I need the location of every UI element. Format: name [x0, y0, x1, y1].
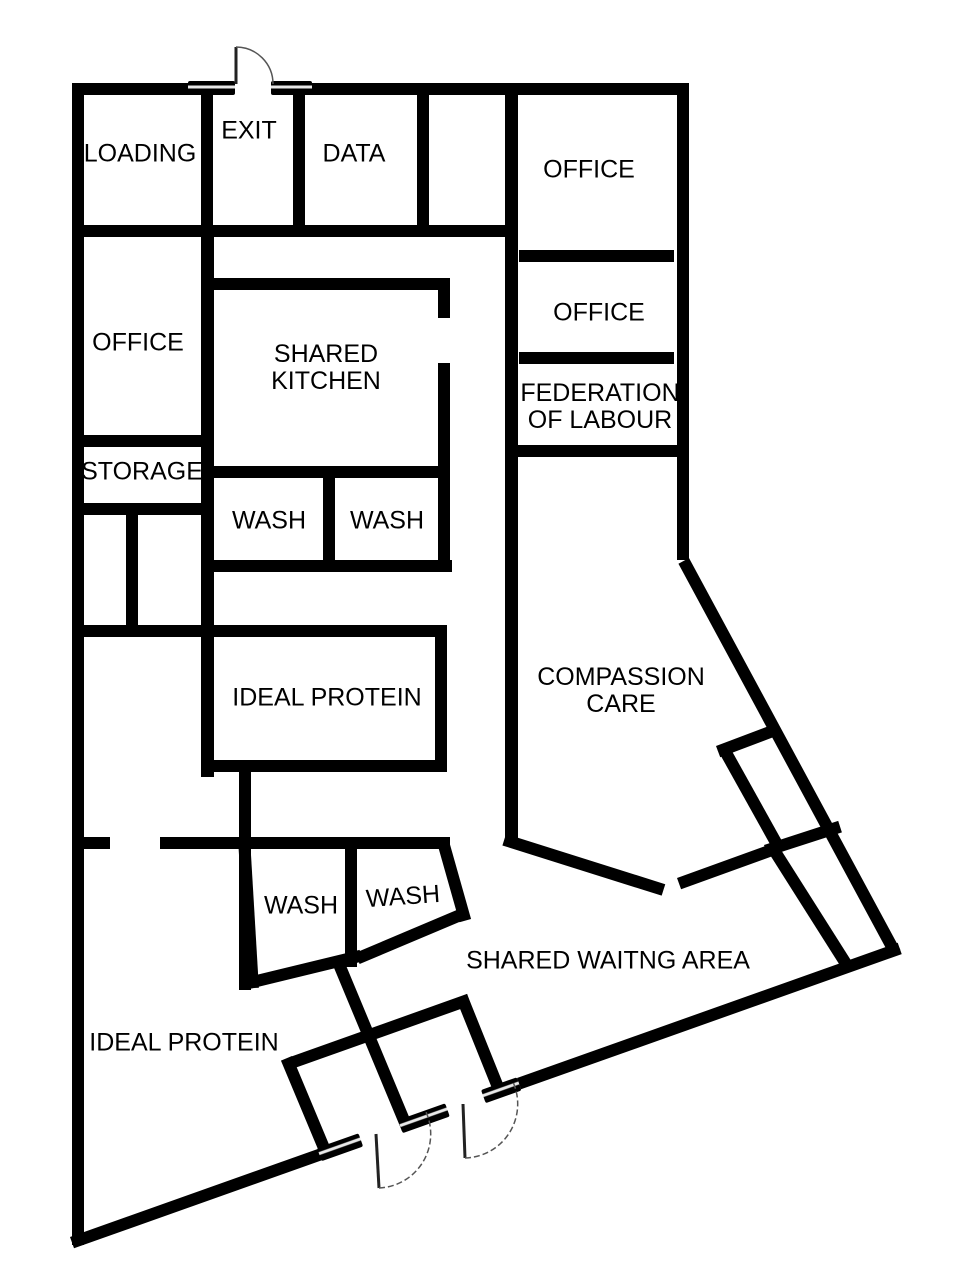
- room-label-compassion-care: COMPASSION CARE: [521, 664, 721, 718]
- room-label-loading: LOADING: [84, 141, 197, 168]
- room-label-office-right-2: OFFICE: [553, 300, 645, 327]
- exit-door-arc-icon: [236, 47, 273, 84]
- room-label-exit: EXIT: [221, 118, 277, 145]
- room-label-shared-kitchen: SHARED KITCHEN: [256, 341, 396, 395]
- room-label-wash-lower-right: WASH: [365, 881, 441, 913]
- room-label-wash-lower-left: WASH: [264, 893, 338, 920]
- room-label-federation-of-labour: FEDERATION OF LABOUR: [510, 380, 690, 434]
- room-label-office-left: OFFICE: [92, 330, 184, 357]
- entry-door2-leaf-icon: [463, 1104, 465, 1158]
- entry-door2-arc-icon: [465, 1082, 518, 1158]
- room-label-wash-upper-right: WASH: [350, 508, 424, 535]
- room-label-shared-waiting-area: SHARED WAITNG AREA: [466, 948, 750, 975]
- room-label-data: DATA: [323, 141, 386, 168]
- floor-plan: LOADING EXIT DATA OFFICE OFFICE FEDERATI…: [0, 0, 955, 1286]
- entry-door1-arc-icon: [379, 1112, 431, 1188]
- room-label-storage: STORAGE: [81, 459, 203, 486]
- room-label-office-top-right: OFFICE: [543, 157, 635, 184]
- room-label-ideal-protein-room: IDEAL PROTEIN: [232, 685, 421, 712]
- entry-door1-leaf-icon: [376, 1134, 379, 1188]
- door-swing-layer: [0, 0, 955, 1286]
- room-label-wash-upper-left: WASH: [232, 508, 306, 535]
- room-label-ideal-protein-area: IDEAL PROTEIN: [89, 1030, 278, 1057]
